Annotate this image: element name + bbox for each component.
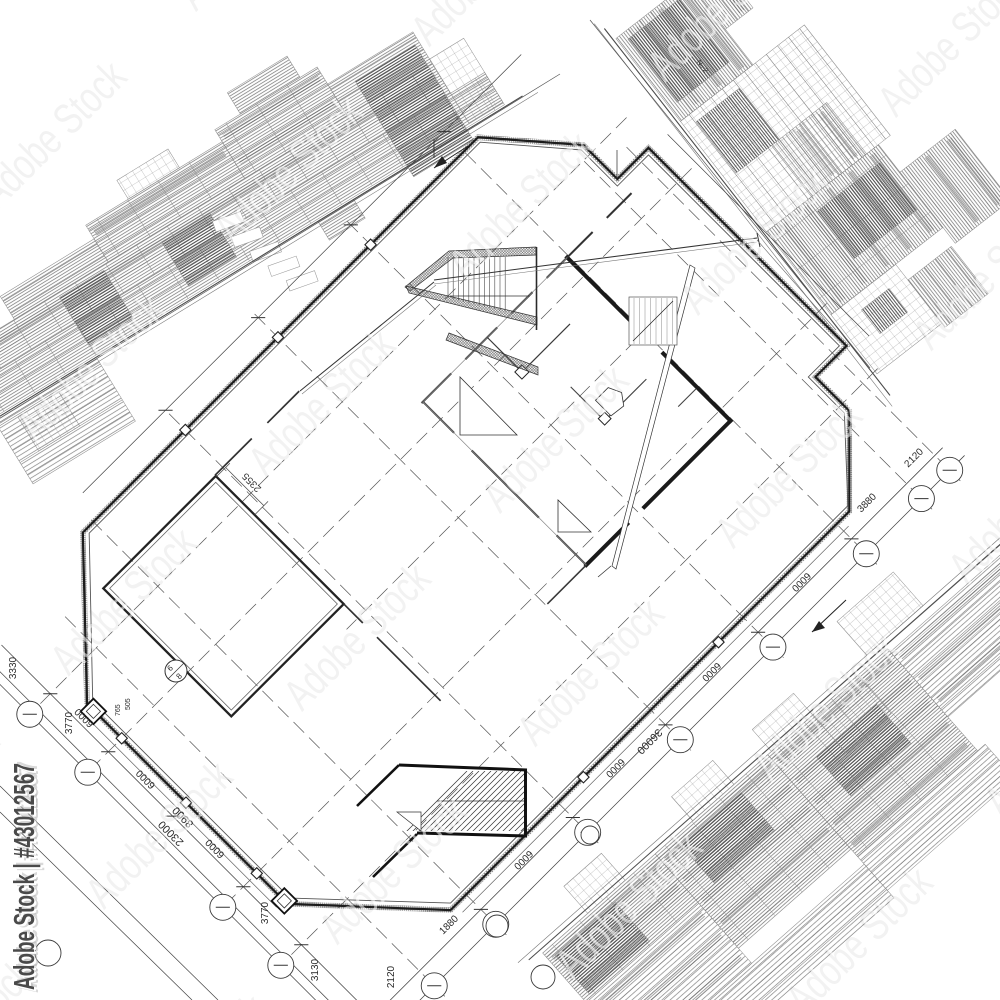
svg-text:3770: 3770	[260, 901, 271, 924]
svg-text:765: 765	[115, 704, 122, 716]
svg-text:3330: 3330	[8, 656, 19, 679]
svg-text:2120: 2120	[386, 965, 397, 988]
svg-text:3770: 3770	[64, 711, 75, 734]
svg-text:Adobe Stock | #43012567: Adobe Stock | #43012567	[9, 763, 41, 990]
svg-text:505: 505	[125, 698, 132, 710]
svg-text:3130: 3130	[310, 958, 321, 981]
